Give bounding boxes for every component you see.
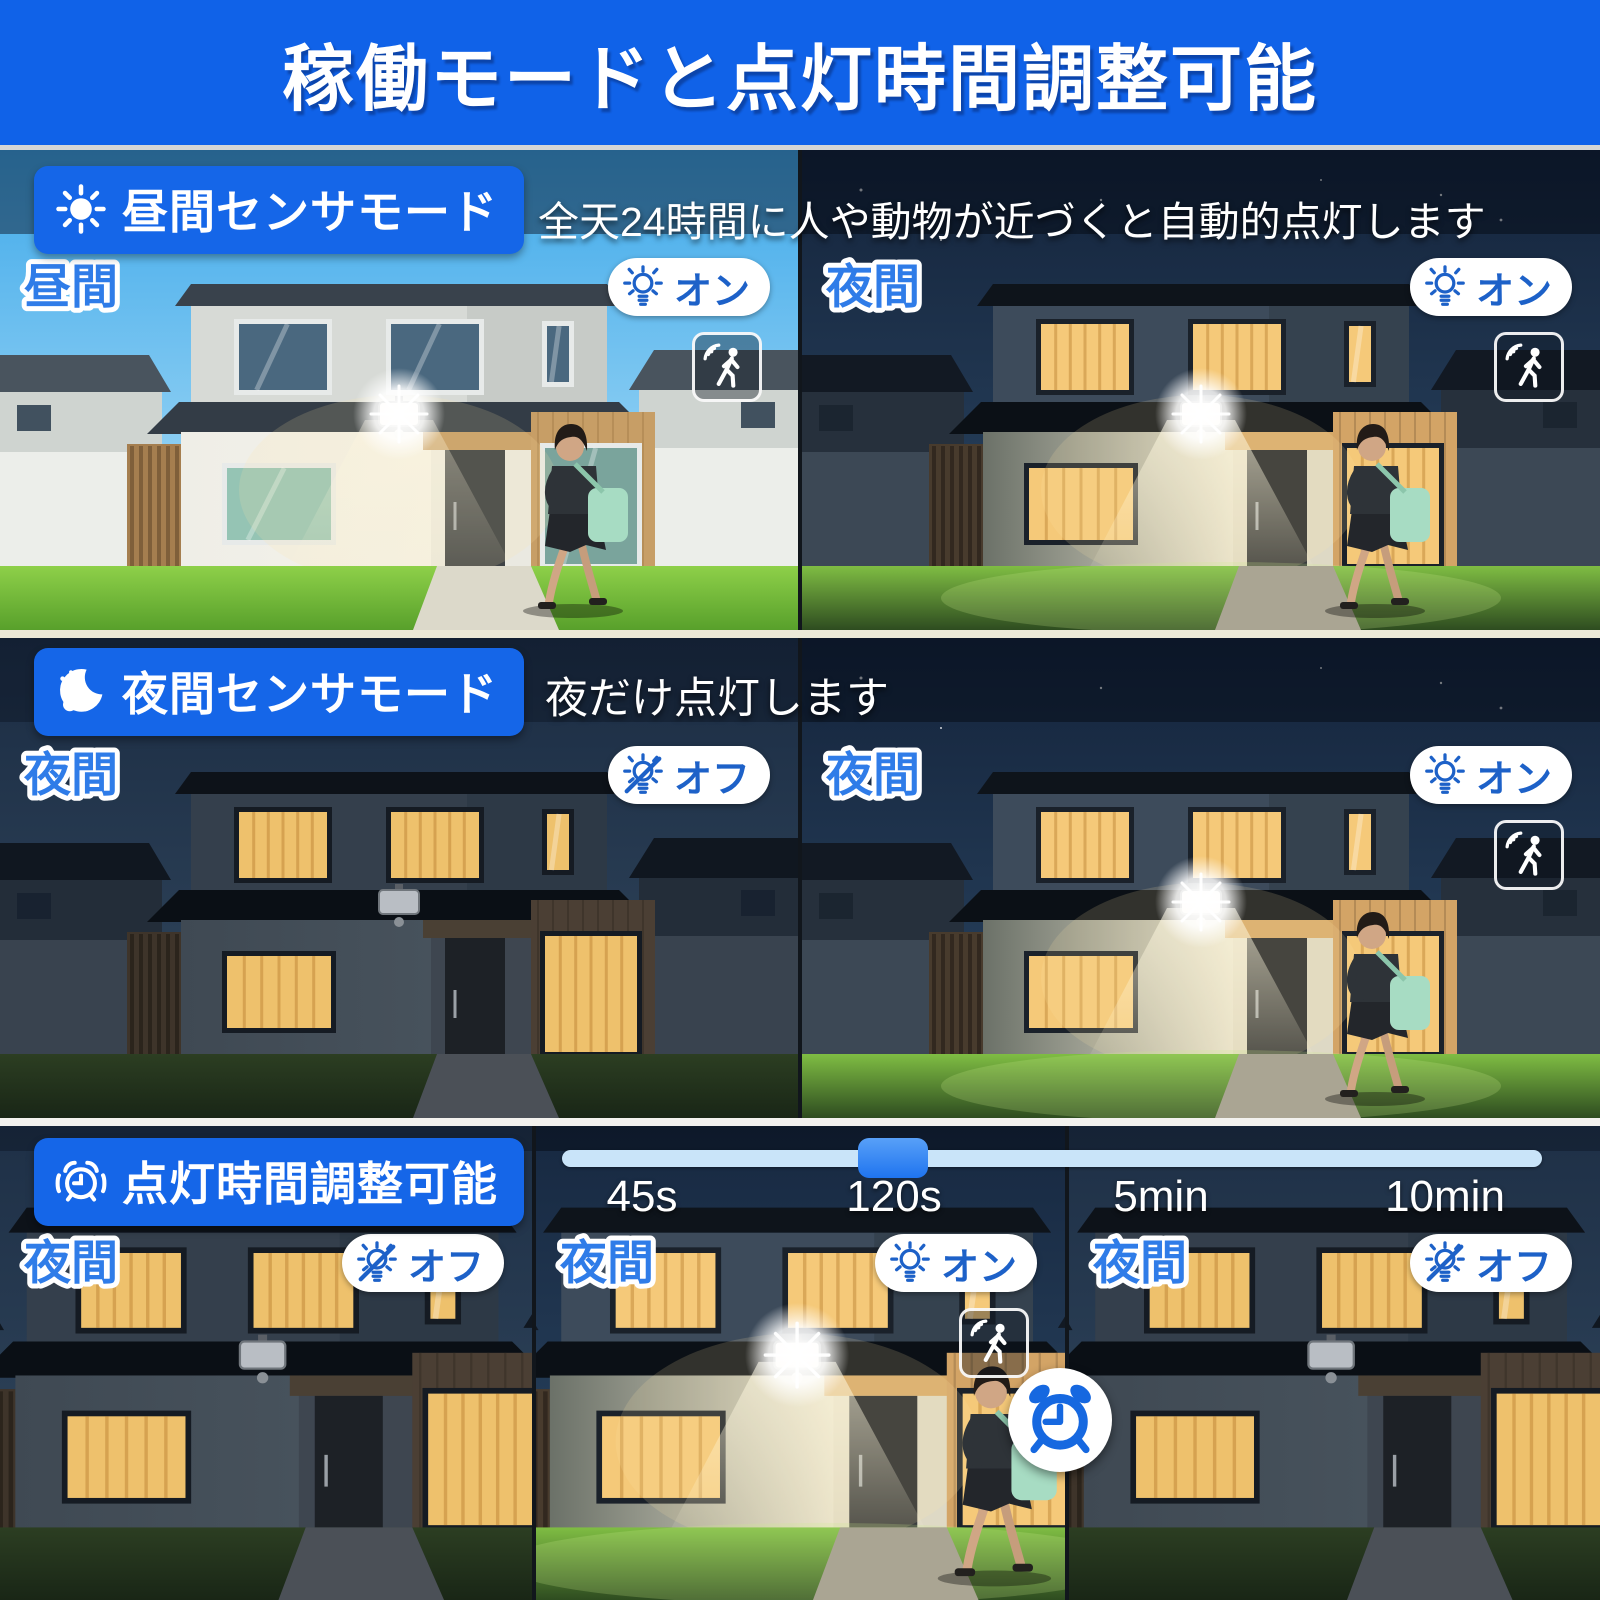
light-status-badge: オン [1410, 258, 1572, 316]
time-of-day-label: 夜間 [818, 252, 1028, 320]
section-duration-adjustable: 夜間 オフ [0, 1126, 1600, 1600]
slider-option-45s: 45s [607, 1172, 678, 1222]
motion-sensor-icon [1494, 332, 1564, 402]
mode-badge-label: 点灯時間調整可能 [122, 1148, 498, 1214]
mode-badge-night-sensor: 夜間センサモード [34, 648, 524, 736]
mode-badge-label: 昼間センサモード [122, 176, 498, 242]
motion-sensor-icon [1494, 820, 1564, 890]
photo-panel-night-light-on: 夜間 オン [802, 638, 1600, 1118]
section-daytime-sensor-mode: 昼間 オン [0, 150, 1600, 630]
svg-text:夜間: 夜間 [23, 1236, 118, 1289]
product-infographic: 稼働モードと点灯時間調整可能 [0, 0, 1600, 1600]
svg-text:夜間: 夜間 [1092, 1236, 1187, 1289]
moon-icon [54, 664, 108, 718]
row-separator [0, 630, 1600, 638]
row-separator [0, 1118, 1600, 1126]
section-description: 全天24時間に人や動物が近づくと自動的点灯します [538, 188, 1486, 248]
light-status-badge: オン [1410, 746, 1572, 804]
svg-text:夜間: 夜間 [825, 748, 920, 801]
time-of-day-label: 夜間 [1085, 1228, 1295, 1296]
slider-option-10min: 10min [1385, 1172, 1505, 1222]
time-of-day-label: 昼間 [16, 252, 226, 320]
light-status-badge: オフ [342, 1234, 504, 1292]
light-status-badge: オン [875, 1234, 1037, 1292]
light-status-badge: オフ [1410, 1234, 1572, 1292]
bulb-off-icon [354, 1240, 400, 1286]
slider-option-5min: 5min [1113, 1172, 1208, 1222]
house-photo-night-light-on [802, 638, 1600, 1118]
mode-badge-daytime-sensor: 昼間センサモード [34, 166, 524, 254]
section-description: 夜だけ点灯します [545, 664, 889, 726]
light-status-badge: オン [608, 258, 770, 316]
alarm-clock-icon [54, 1154, 108, 1208]
bulb-off-icon [1422, 1240, 1468, 1286]
bulb-on-icon [887, 1240, 933, 1286]
svg-text:昼間: 昼間 [24, 260, 118, 313]
time-of-day-label: 夜間 [818, 740, 1028, 808]
svg-text:夜間: 夜間 [559, 1236, 654, 1289]
motion-sensor-icon [959, 1308, 1029, 1378]
bulb-off-icon [620, 752, 666, 798]
slider-option-120s: 120s [846, 1172, 941, 1222]
mode-badge-label: 夜間センサモード [122, 658, 498, 724]
time-of-day-label: 夜間 [16, 740, 226, 808]
slider-track[interactable] [562, 1150, 1542, 1167]
banner: 稼働モードと点灯時間調整可能 [0, 0, 1600, 150]
motion-sensor-icon [692, 332, 762, 402]
alarm-clock-badge-icon [1008, 1368, 1112, 1472]
bulb-on-icon [620, 264, 666, 310]
svg-text:夜間: 夜間 [825, 260, 920, 313]
bulb-on-icon [1422, 752, 1468, 798]
mode-badge-duration: 点灯時間調整可能 [34, 1138, 524, 1226]
banner-title: 稼働モードと点灯時間調整可能 [282, 20, 1318, 125]
light-status-badge: オフ [608, 746, 770, 804]
time-of-day-label: 夜間 [552, 1228, 762, 1296]
bulb-on-icon [1422, 264, 1468, 310]
svg-text:夜間: 夜間 [23, 748, 118, 801]
sun-icon [54, 182, 108, 236]
time-of-day-label: 夜間 [16, 1228, 226, 1296]
section-night-sensor-mode: 夜間 オフ [0, 638, 1600, 1118]
